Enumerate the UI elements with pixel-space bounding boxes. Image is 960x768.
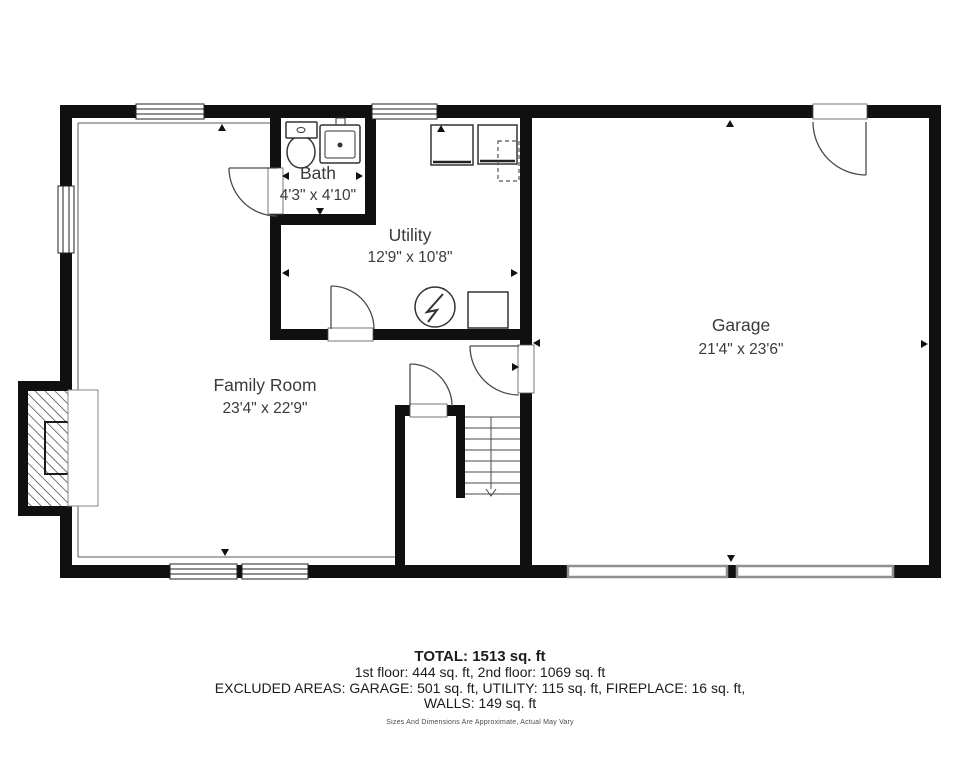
dryer-icon xyxy=(478,125,517,164)
arrow-up xyxy=(218,124,226,131)
room-label-garage: Garage xyxy=(712,315,770,335)
room-dims-family: 23'4" x 22'9" xyxy=(222,400,307,417)
window-left xyxy=(58,186,74,253)
summary-excluded: EXCLUDED AREAS: GARAGE: 501 sq. ft, UTIL… xyxy=(0,681,960,697)
sink-icon xyxy=(320,118,360,163)
windows xyxy=(58,104,437,579)
wall-bath-right xyxy=(365,105,376,225)
fireplace-icon xyxy=(18,381,98,516)
room-dims-bath: 4'3" x 4'10" xyxy=(280,187,356,204)
garage-door-2 xyxy=(737,566,893,577)
utility-door-swing xyxy=(331,286,374,329)
floor-plan: Bath 4'3" x 4'10" Utility 12'9" x 10'8" … xyxy=(0,0,960,640)
fireplace-masonry xyxy=(28,391,70,506)
wall-garage-left xyxy=(520,105,532,578)
room-label-family: Family Room xyxy=(213,375,316,395)
wall-left-lower xyxy=(60,506,72,578)
wall-utility-bottom xyxy=(270,329,532,340)
hall-door-opening xyxy=(410,404,447,417)
floor-plan-page: Bath 4'3" x 4'10" Utility 12'9" x 10'8" … xyxy=(0,0,960,768)
stair-direction-arrow xyxy=(486,489,496,496)
arrow-right xyxy=(921,340,928,348)
wall-stair-inner xyxy=(456,405,465,498)
room-dims-garage: 21'4" x 23'6" xyxy=(698,341,783,358)
area-summary: TOTAL: 1513 sq. ft 1st floor: 444 sq. ft… xyxy=(0,649,960,726)
hearth xyxy=(68,390,98,506)
room-label-bath: Bath xyxy=(300,163,336,183)
room-dims-utility: 12'9" x 10'8" xyxy=(367,249,452,266)
summary-floors: 1st floor: 444 sq. ft, 2nd floor: 1069 s… xyxy=(0,665,960,681)
arrow-down xyxy=(221,549,229,556)
summary-walls: WALLS: 149 sq. ft xyxy=(0,696,960,712)
walls xyxy=(60,105,941,578)
garage-entry-door-swing xyxy=(813,122,866,175)
wall-right xyxy=(929,105,941,578)
summary-total: TOTAL: 1513 sq. ft xyxy=(0,649,960,665)
water-heater-icon xyxy=(415,287,455,327)
room-labels: Bath 4'3" x 4'10" Utility 12'9" x 10'8" … xyxy=(213,163,783,417)
hall-door-swing xyxy=(410,364,452,406)
window-top-utility xyxy=(372,104,437,119)
window-top-left xyxy=(136,104,204,119)
bath-fixtures xyxy=(286,118,360,168)
garage-door-1 xyxy=(568,566,727,577)
arrow-left xyxy=(282,269,289,277)
arrow-right xyxy=(511,269,518,277)
arrow-down xyxy=(727,555,735,562)
utility-door-opening xyxy=(328,328,373,341)
garage-hall-door-opening xyxy=(518,345,534,393)
window-bottom-1 xyxy=(170,564,237,579)
room-label-utility: Utility xyxy=(389,225,432,245)
staircase-down-icon xyxy=(465,417,520,496)
summary-disclaimer: Sizes And Dimensions Are Approximate, Ac… xyxy=(0,719,960,726)
arrow-up xyxy=(726,120,734,127)
wall-bath-bottom xyxy=(270,214,376,225)
garage-entry-door-opening xyxy=(813,104,867,119)
garage-hall-door-swing xyxy=(470,346,519,395)
utility-box-icon xyxy=(468,292,508,328)
arrow-right xyxy=(356,172,363,180)
window-bottom-2 xyxy=(242,564,308,579)
wall-hall-left xyxy=(395,405,405,565)
toilet-icon xyxy=(286,122,317,168)
washer-icon xyxy=(431,125,473,165)
arrow-down xyxy=(316,208,324,215)
